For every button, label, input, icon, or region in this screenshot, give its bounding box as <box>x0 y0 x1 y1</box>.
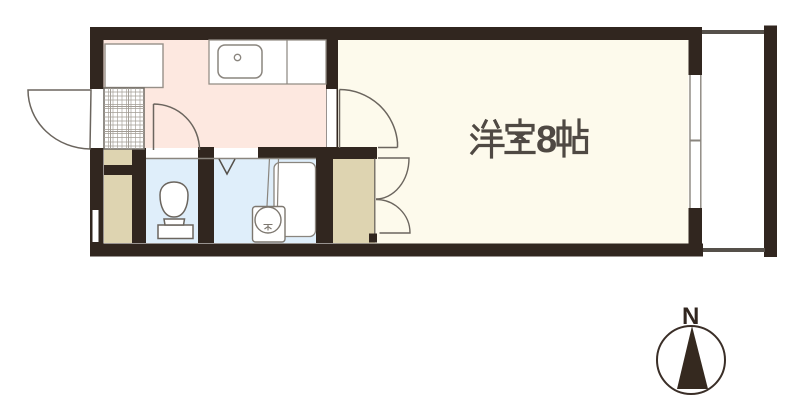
svg-text:8: 8 <box>536 119 557 161</box>
svg-text:N: N <box>682 303 699 330</box>
